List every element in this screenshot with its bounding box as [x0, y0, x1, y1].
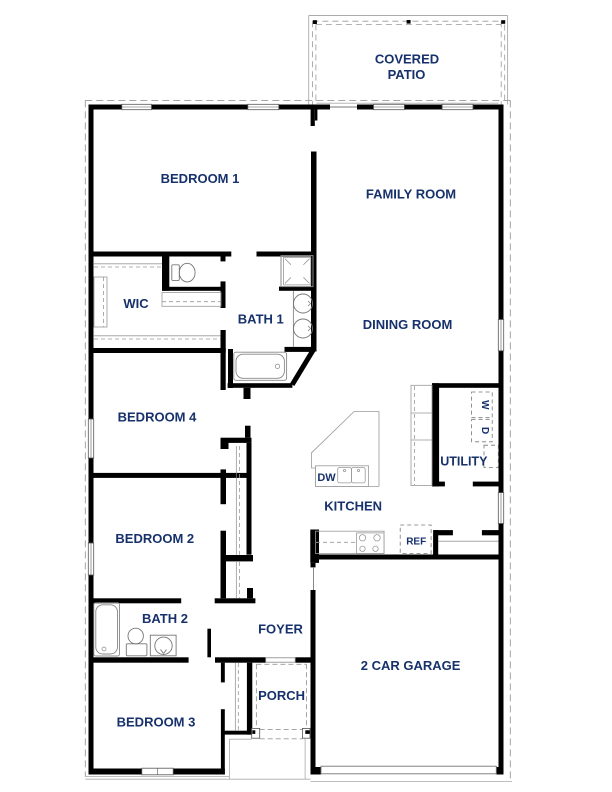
svg-text:BATH 1: BATH 1	[238, 312, 284, 327]
svg-text:D: D	[479, 427, 490, 434]
svg-text:WIC: WIC	[123, 296, 149, 311]
svg-text:FAMILY ROOM: FAMILY ROOM	[366, 187, 456, 202]
svg-text:REF: REF	[406, 537, 426, 548]
svg-text:COVERED: COVERED	[375, 52, 439, 67]
svg-text:W: W	[479, 400, 490, 410]
svg-text:PORCH: PORCH	[258, 688, 305, 703]
svg-text:2 CAR GARAGE: 2 CAR GARAGE	[361, 658, 461, 673]
svg-text:BEDROOM 2: BEDROOM 2	[115, 531, 194, 546]
svg-text:BEDROOM 4: BEDROOM 4	[118, 410, 198, 425]
svg-text:DW: DW	[317, 472, 336, 484]
svg-text:BATH 2: BATH 2	[142, 611, 188, 626]
svg-text:UTILITY: UTILITY	[440, 455, 488, 469]
svg-text:BEDROOM 3: BEDROOM 3	[117, 714, 196, 729]
svg-text:PATIO: PATIO	[388, 67, 426, 82]
svg-text:FOYER: FOYER	[258, 622, 303, 637]
svg-text:DINING ROOM: DINING ROOM	[363, 317, 453, 332]
svg-text:BEDROOM 1: BEDROOM 1	[161, 171, 240, 186]
svg-text:KITCHEN: KITCHEN	[324, 499, 382, 514]
